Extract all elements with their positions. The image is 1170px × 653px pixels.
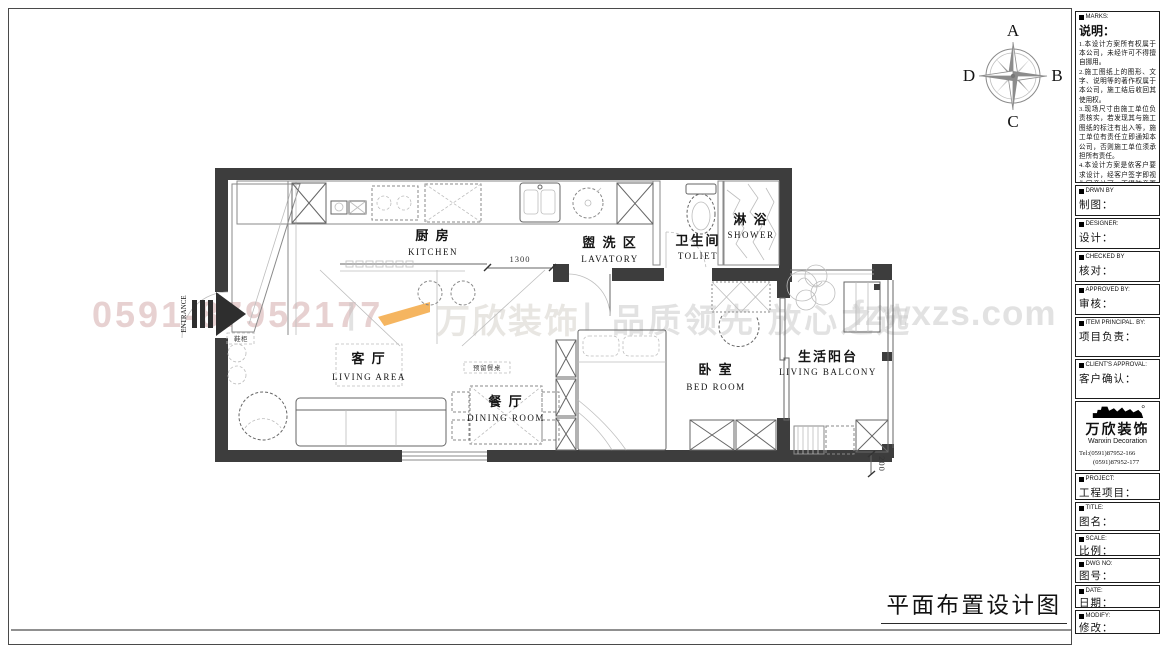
company-fax: Fax:(0591)87952-199 — [1079, 468, 1156, 471]
field-header: CLIENT'S APPROVAL: — [1086, 362, 1147, 369]
bullet-square-icon — [1079, 255, 1084, 260]
room-label-bedroom-cn: 卧 室 — [698, 362, 733, 377]
field-header: DATE: — [1086, 588, 1103, 595]
notes-header-text: MARKS: — [1086, 14, 1109, 21]
company-name-en: Wanxin Decoration — [1079, 438, 1156, 446]
field-label: 比例： — [1079, 543, 1156, 556]
bullet-square-icon — [1079, 537, 1084, 542]
bullet-square-icon — [1079, 189, 1084, 194]
dining-note: 预留餐桌 — [473, 363, 501, 372]
field-label: 图名： — [1079, 514, 1156, 529]
field-label: 工程项目： — [1079, 485, 1156, 500]
sheet-inner-rule — [11, 629, 1071, 631]
field-checked-by: CHECKED BY 核对： — [1075, 251, 1160, 282]
bullet-square-icon — [1079, 15, 1084, 20]
note-item: 4.本设计方案是依客户要求设计，经客户签字即视为同意认可，不得随意更改。 — [1079, 161, 1156, 183]
field-drawn-by: DRWN BY 制图： — [1075, 185, 1160, 216]
field-header: DRWN BY — [1086, 188, 1114, 195]
room-label-kitchen-en: KITCHEN — [408, 247, 458, 257]
field-label: 图号： — [1079, 568, 1156, 583]
notes-title: 说明： — [1079, 22, 1156, 39]
bullet-square-icon — [1079, 506, 1084, 511]
drawing-title: 平面布置设计图 — [868, 588, 1080, 624]
bullet-square-icon — [1079, 477, 1084, 482]
room-label-bedroom-en: BED ROOM — [686, 382, 745, 392]
bullet-square-icon — [1079, 614, 1084, 619]
field-date: DATE: 日期： — [1075, 585, 1160, 608]
room-labels: 厨 房 KITCHEN 盥 洗 区 LAVATORY 卫生间 TOLIET 淋 … — [332, 212, 877, 423]
entrance-arrow-icon — [192, 292, 246, 336]
entrance-label: ENTRANCE — [180, 295, 188, 332]
field-label: 项目负责： — [1079, 329, 1156, 344]
room-label-living-cn: 客 厅 — [351, 351, 386, 366]
field-label: 审核： — [1079, 296, 1156, 311]
field-label: 客户确认： — [1079, 371, 1156, 386]
company-logo — [1087, 405, 1149, 418]
room-label-balcony-en: LIVING BALCONY — [779, 367, 877, 377]
drawing-sheet: { "drawing_title": "平面布置设计图", "compass":… — [0, 0, 1170, 653]
dimension-1300: 1300 — [510, 254, 531, 264]
room-label-lavatory-en: LAVATORY — [581, 254, 639, 264]
room-label-kitchen-cn: 厨 房 — [415, 228, 450, 243]
field-modify: MODIFY: 修改： — [1075, 610, 1160, 634]
bullet-square-icon — [1079, 589, 1084, 594]
field-title: TITLE: 图名： — [1075, 502, 1160, 531]
field-scale: SCALE: 比例： — [1075, 533, 1160, 556]
room-label-shower-cn: 淋 浴 — [733, 212, 768, 227]
entry-note: 鞋柜 — [234, 334, 248, 343]
bullet-square-icon — [1079, 321, 1084, 326]
field-label: 日期： — [1079, 595, 1156, 608]
room-label-dining-en: DINING ROOM — [467, 413, 545, 423]
field-header: PROJECT: — [1086, 476, 1115, 483]
company-contact: Tel:(0591)87952-166 (0591)87952-177 Fax:… — [1079, 449, 1156, 471]
room-label-toilet-en: TOLIET — [678, 251, 718, 261]
field-header: MODIFY: — [1086, 613, 1111, 620]
room-label-toilet-cn: 卫生间 — [675, 233, 720, 248]
company-tel2: (0591)87952-177 — [1079, 458, 1156, 468]
room-label-living-en: LIVING AREA — [332, 372, 406, 382]
entrance: ENTRANCE — [180, 292, 246, 338]
field-label: 制图： — [1079, 197, 1156, 212]
room-label-dining-cn: 餐 厅 — [487, 394, 523, 409]
field-header: CHECKED BY — [1086, 254, 1125, 261]
field-label: 核对： — [1079, 263, 1156, 278]
field-header: DESIGNER: — [1086, 221, 1119, 228]
room-label-lavatory-cn: 盥 洗 区 — [582, 235, 638, 250]
compass-letter-south: C — [1007, 112, 1018, 131]
compass-letter-west: D — [963, 66, 975, 85]
compass-letter-north: A — [1007, 21, 1020, 40]
field-approved-by: APPROVED BY: 审核： — [1075, 284, 1160, 315]
field-header: APPROVED BY: — [1086, 287, 1130, 294]
bullet-square-icon — [1079, 288, 1084, 293]
note-item: 3.现场尺寸由施工单位负责核实，若发现其与施工图纸的标注有出入等，施工单位有责任… — [1079, 105, 1156, 161]
bullet-square-icon — [1079, 222, 1084, 227]
field-header: DWG NO: — [1086, 561, 1113, 568]
field-designer: DESIGNER: 设计： — [1075, 218, 1160, 249]
room-label-shower-en: SHOWER — [728, 230, 775, 240]
company-name: 万欣装饰 — [1079, 423, 1156, 438]
note-item: 2.施工图纸上的图形、文字、说明等的著作权属于本公司，施工结后收回其使用权。 — [1079, 68, 1156, 105]
note-item: 1.本设计方案所有权属于本公司，未经许可不得擅自挪用。 — [1079, 40, 1156, 68]
drawing-title-text: 平面布置设计图 — [881, 588, 1066, 624]
notes-box: MARKS: 说明： 1.本设计方案所有权属于本公司，未经许可不得擅自挪用。 2… — [1075, 11, 1160, 183]
bedroom-furniture — [569, 274, 789, 450]
field-item-principal: ITEM PRINCIPAL. BY: 项目负责： — [1075, 317, 1160, 357]
room-label-balcony-cn: 生活阳台 — [798, 349, 858, 364]
field-header: ITEM PRINCIPAL. BY: — [1086, 320, 1146, 327]
field-dwg-no: DWG NO: 图号： — [1075, 558, 1160, 583]
field-client-approval: CLIENT'S APPROVAL: 客户确认： — [1075, 359, 1160, 399]
floor-plan: 1300 鞋柜 预留餐桌 ENTRANCE — [160, 148, 930, 518]
dimension-200: 200 — [877, 456, 887, 472]
compass-rose-icon: A B C D — [958, 20, 1068, 132]
field-header: TITLE: — [1086, 505, 1104, 512]
bullet-square-icon — [1079, 363, 1084, 368]
title-block: MARKS: 说明： 1.本设计方案所有权属于本公司，未经许可不得擅自挪用。 2… — [1071, 8, 1162, 645]
notes-header: MARKS: — [1079, 14, 1156, 21]
field-label: 修改： — [1079, 620, 1156, 634]
field-label: 设计： — [1079, 230, 1156, 245]
compass-letter-east: B — [1051, 66, 1062, 85]
company-tel1: Tel:(0591)87952-166 — [1079, 449, 1156, 459]
bullet-square-icon — [1079, 562, 1084, 567]
field-project: PROJECT: 工程项目： — [1075, 473, 1160, 500]
company-box: 万欣装饰 Wanxin Decoration Tel:(0591)87952-1… — [1075, 401, 1160, 471]
field-header: SCALE: — [1086, 536, 1107, 543]
